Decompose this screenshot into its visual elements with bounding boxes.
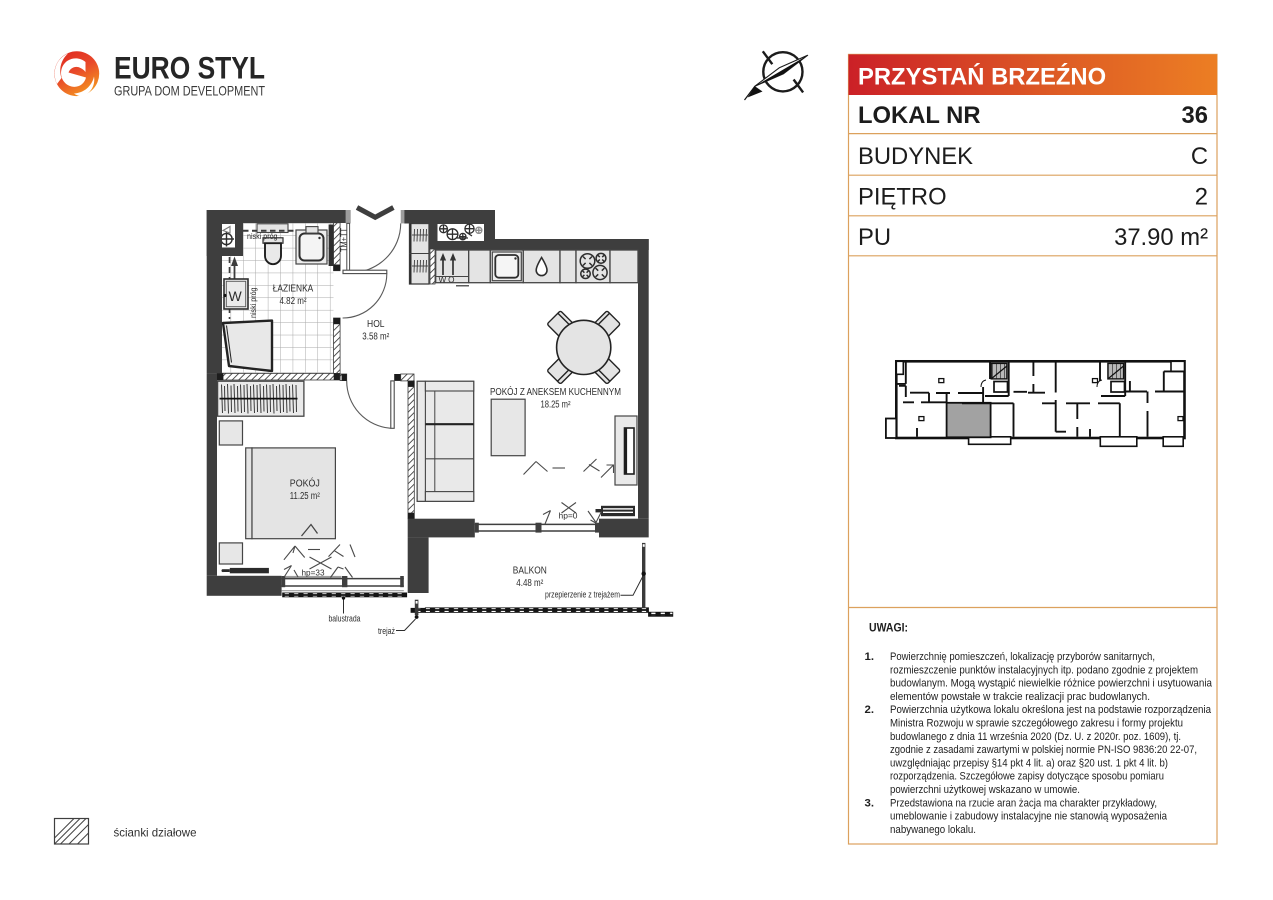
svg-text:POKÓJ Z ANEKSEM KUCHENNYM: POKÓJ Z ANEKSEM KUCHENNYM [490, 385, 621, 398]
svg-text:11.25 m²: 11.25 m² [290, 491, 321, 502]
svg-text:36: 36 [1182, 102, 1208, 129]
svg-text:niski próg: niski próg [247, 232, 278, 241]
svg-text:ścianki działowe: ścianki działowe [114, 826, 197, 840]
svg-text:GRUPA DOM DEVELOPMENT: GRUPA DOM DEVELOPMENT [114, 84, 265, 99]
svg-text:EURO STYL: EURO STYL [114, 50, 265, 86]
svg-text:UWAGI:: UWAGI: [869, 621, 908, 635]
svg-text:18.25 m²: 18.25 m² [541, 399, 572, 410]
svg-text:Powierzchnia użytkowa lokalu o: Powierzchnia użytkowa lokalu określona j… [890, 704, 1214, 796]
svg-text:ŁAZIENKA: ŁAZIENKA [273, 284, 314, 295]
svg-text:trejaż: trejaż [378, 626, 395, 636]
svg-text:3.: 3. [865, 797, 875, 809]
svg-text:4.48 m²: 4.48 m² [516, 578, 544, 589]
svg-text:hp=33: hp=33 [302, 567, 325, 577]
svg-text:PRZYSTAŃ BRZEŹNO: PRZYSTAŃ BRZEŹNO [858, 62, 1106, 90]
svg-text:PU: PU [858, 224, 891, 251]
svg-text:W: W [229, 288, 243, 304]
svg-text:BUDYNEK: BUDYNEK [858, 143, 973, 170]
svg-text:niski próg: niski próg [249, 288, 258, 319]
svg-text:3.58 m²: 3.58 m² [362, 332, 390, 343]
svg-text:hp=0: hp=0 [559, 511, 578, 521]
svg-text:1.: 1. [865, 651, 875, 663]
svg-text:2.: 2. [865, 704, 875, 716]
svg-text:4.82 m²: 4.82 m² [280, 296, 308, 307]
svg-text:PIĘTRO: PIĘTRO [858, 184, 947, 211]
svg-text:POKÓJ: POKÓJ [290, 477, 320, 490]
svg-text:LOKAL NR: LOKAL NR [858, 102, 981, 129]
svg-text:HOL: HOL [367, 319, 385, 330]
svg-text:C: C [1191, 143, 1208, 170]
svg-text:BALKON: BALKON [513, 566, 547, 577]
svg-text:37.90 m²: 37.90 m² [1114, 224, 1208, 251]
svg-text:przepierzenie z trejażem: przepierzenie z trejażem [545, 590, 620, 600]
svg-text:TM+TT: TM+TT [340, 228, 349, 252]
svg-text:balustrada: balustrada [329, 614, 361, 624]
svg-text:2: 2 [1195, 184, 1208, 211]
